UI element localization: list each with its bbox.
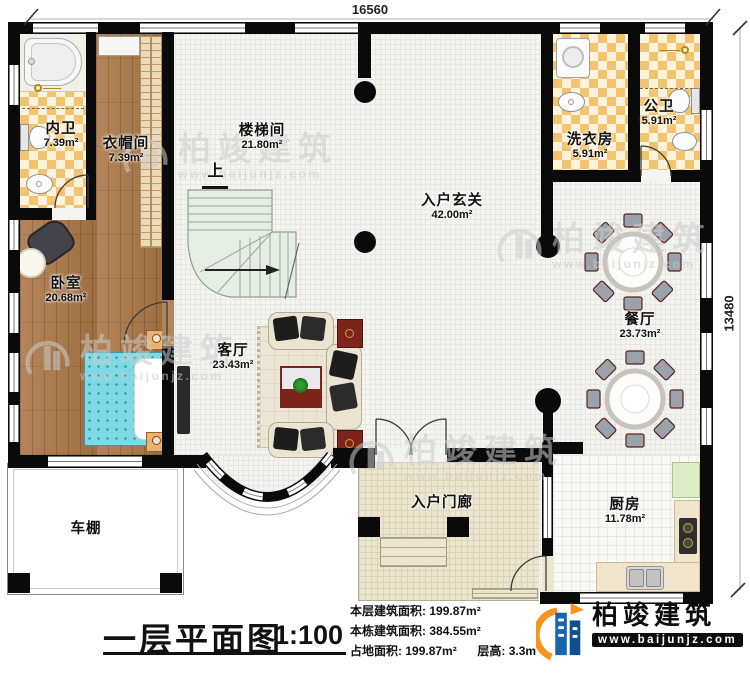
faucet-icon xyxy=(681,46,689,54)
end-table-medallion-icon xyxy=(345,329,354,338)
stat-line: 占地面积: 199.87m² 层高: 3.3m xyxy=(350,641,536,661)
carport-column xyxy=(160,573,182,593)
end-table-medallion-icon xyxy=(345,439,354,448)
company-logo-icon xyxy=(536,601,588,663)
fridge xyxy=(672,462,700,498)
window xyxy=(560,23,600,33)
sofa-cushion xyxy=(329,382,358,412)
wall-stub-dining xyxy=(543,412,553,448)
faucet-icon xyxy=(34,84,42,92)
column xyxy=(535,388,561,414)
sink xyxy=(672,132,697,151)
room-label-stairwell: 楼梯间 21.80m² xyxy=(217,123,307,152)
burner-icon xyxy=(683,538,693,548)
company-website: www.baijunjz.com xyxy=(592,633,743,647)
window xyxy=(701,408,712,445)
bath-private-divider xyxy=(22,108,84,109)
sofa-cushion xyxy=(273,427,299,451)
window xyxy=(645,23,685,33)
round-rug xyxy=(16,248,46,278)
bathtub-basin xyxy=(31,43,76,81)
door-opening xyxy=(641,170,671,182)
wall-bay-left xyxy=(174,455,206,468)
column xyxy=(354,81,376,103)
faucet-pipe xyxy=(43,88,61,89)
room-label-entry-foyer: 入户玄关 42.00m² xyxy=(402,193,502,222)
window xyxy=(9,405,19,442)
room-label-cloakroom: 衣帽间 7.39m² xyxy=(81,136,171,165)
title-underline xyxy=(103,652,346,655)
company-logo: 柏竣建筑 www.baijunjz.com xyxy=(536,601,743,663)
plan-scale: 1:100 xyxy=(274,620,343,651)
burner-icon xyxy=(683,523,693,533)
wall-laundry-bottom xyxy=(541,170,713,182)
room-label-laundry: 洗衣房 5.91m² xyxy=(545,132,635,161)
sofa-cushion xyxy=(300,316,327,342)
window xyxy=(9,293,19,333)
stat-line: 本层建筑面积: 199.87m² xyxy=(350,601,536,621)
porch-steps xyxy=(380,537,447,567)
kitchen-sink-basin xyxy=(629,569,644,587)
stair-up-mark xyxy=(202,186,228,189)
dimension-top: 16560 xyxy=(330,2,410,17)
wall-stub-top xyxy=(358,32,371,78)
door-opening xyxy=(52,208,86,220)
door-opening xyxy=(162,300,174,346)
porch-column xyxy=(447,517,469,537)
room-label-kitchen: 厨房 11.78m² xyxy=(580,497,670,526)
room-label-entry-porch: 入户门廊 xyxy=(392,495,492,511)
sink-drain-icon xyxy=(568,99,574,105)
washing-machine-door-icon xyxy=(562,46,584,68)
porch-column xyxy=(358,517,380,537)
kitchen-sink-basin xyxy=(646,569,661,587)
floor-plan-canvas: 柏竣建筑 www.baijunjz.com 柏竣建筑 www.baijunjz.… xyxy=(0,0,750,673)
window xyxy=(701,243,712,298)
tv-console xyxy=(177,366,190,434)
stat-line: 本栋建筑面积: 384.55m² xyxy=(350,621,536,641)
room-label-living: 客厅 23.43m² xyxy=(188,343,278,372)
window xyxy=(295,23,358,33)
stair-up-label: 上 xyxy=(196,163,236,181)
column xyxy=(354,231,376,253)
dimension-right: 13480 xyxy=(722,284,737,344)
nightstand-lamp-icon xyxy=(152,334,161,343)
plant-icon xyxy=(293,378,308,393)
sofa-cushion xyxy=(329,350,359,381)
wall-bay-right xyxy=(331,455,375,468)
window xyxy=(9,65,19,105)
room-label-bedroom: 卧室 20.68m² xyxy=(21,276,111,305)
faucet-pipe xyxy=(660,50,680,51)
sink-drain-icon xyxy=(36,181,42,187)
sofa-cushion xyxy=(273,315,300,341)
window xyxy=(543,477,552,538)
room-label-carport: 车棚 xyxy=(41,521,131,537)
window xyxy=(701,333,712,370)
dresser xyxy=(98,36,140,56)
carport-column xyxy=(8,573,30,593)
window xyxy=(9,218,19,250)
room-label-dining: 餐厅 23.73m² xyxy=(595,312,685,341)
entry-door-opening xyxy=(375,448,447,462)
bath-public-divider xyxy=(640,88,698,89)
sofa-cushion xyxy=(300,427,327,452)
area-stats: 本层建筑面积: 199.87m² 本栋建筑面积: 384.55m² 占地面积: … xyxy=(350,601,536,661)
wall-bedroom-right xyxy=(162,32,174,468)
room-label-bath-public: 公卫 5.91m² xyxy=(614,99,704,128)
window xyxy=(140,23,245,33)
column xyxy=(536,234,560,258)
bathtub-drain-icon xyxy=(28,58,35,65)
porch-side-steps xyxy=(472,588,538,599)
company-name: 柏竣建筑 xyxy=(592,601,743,630)
nightstand-lamp-icon xyxy=(152,436,161,445)
window xyxy=(9,353,19,392)
window xyxy=(48,456,142,467)
wall-kitchen-top-stub xyxy=(553,442,583,454)
door-opening xyxy=(542,556,553,592)
